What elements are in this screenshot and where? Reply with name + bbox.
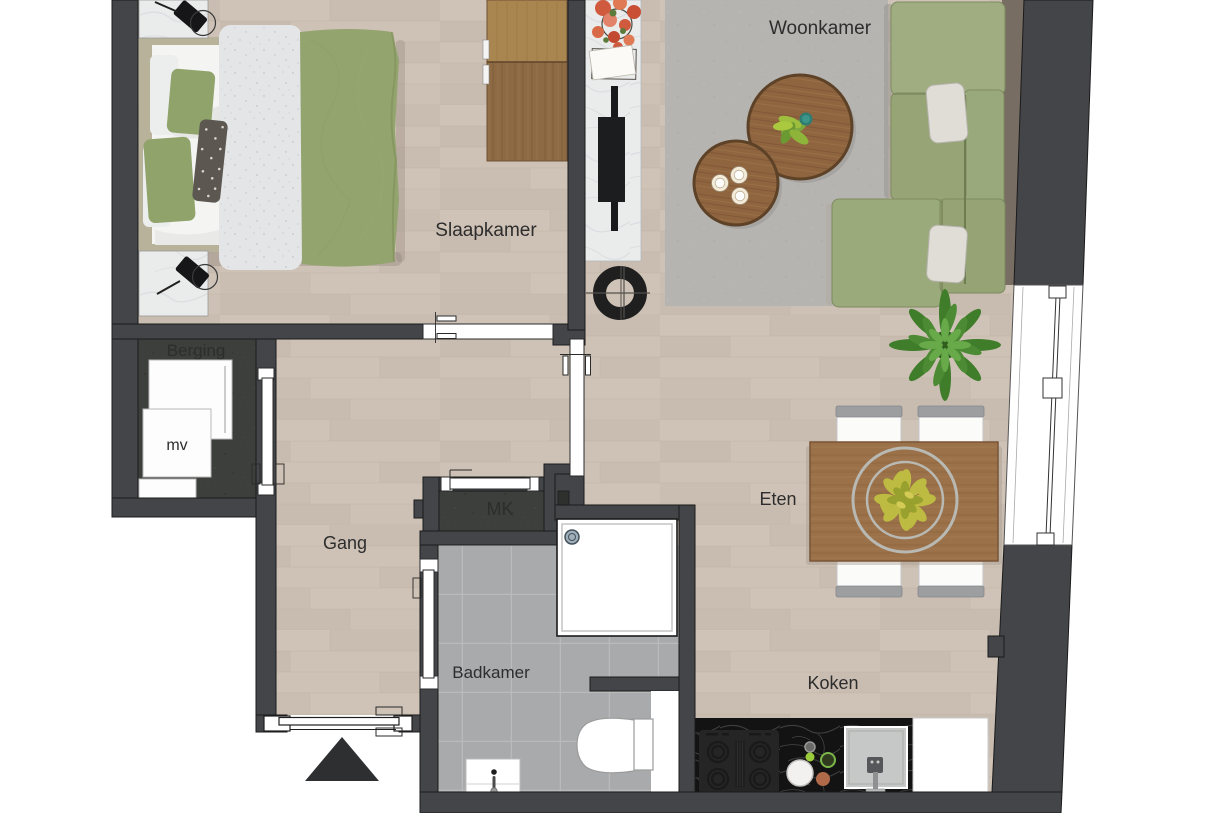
svg-text:Berging: Berging — [167, 341, 226, 360]
svg-text:Gang: Gang — [323, 533, 367, 553]
svg-text:Slaapkamer: Slaapkamer — [435, 220, 537, 241]
svg-text:Woonkamer: Woonkamer — [769, 18, 872, 39]
svg-text:Eten: Eten — [759, 489, 796, 509]
svg-text:Koken: Koken — [807, 673, 858, 693]
svg-text:Badkamer: Badkamer — [452, 663, 530, 682]
svg-text:MK: MK — [487, 499, 514, 519]
svg-text:mv: mv — [166, 437, 187, 454]
